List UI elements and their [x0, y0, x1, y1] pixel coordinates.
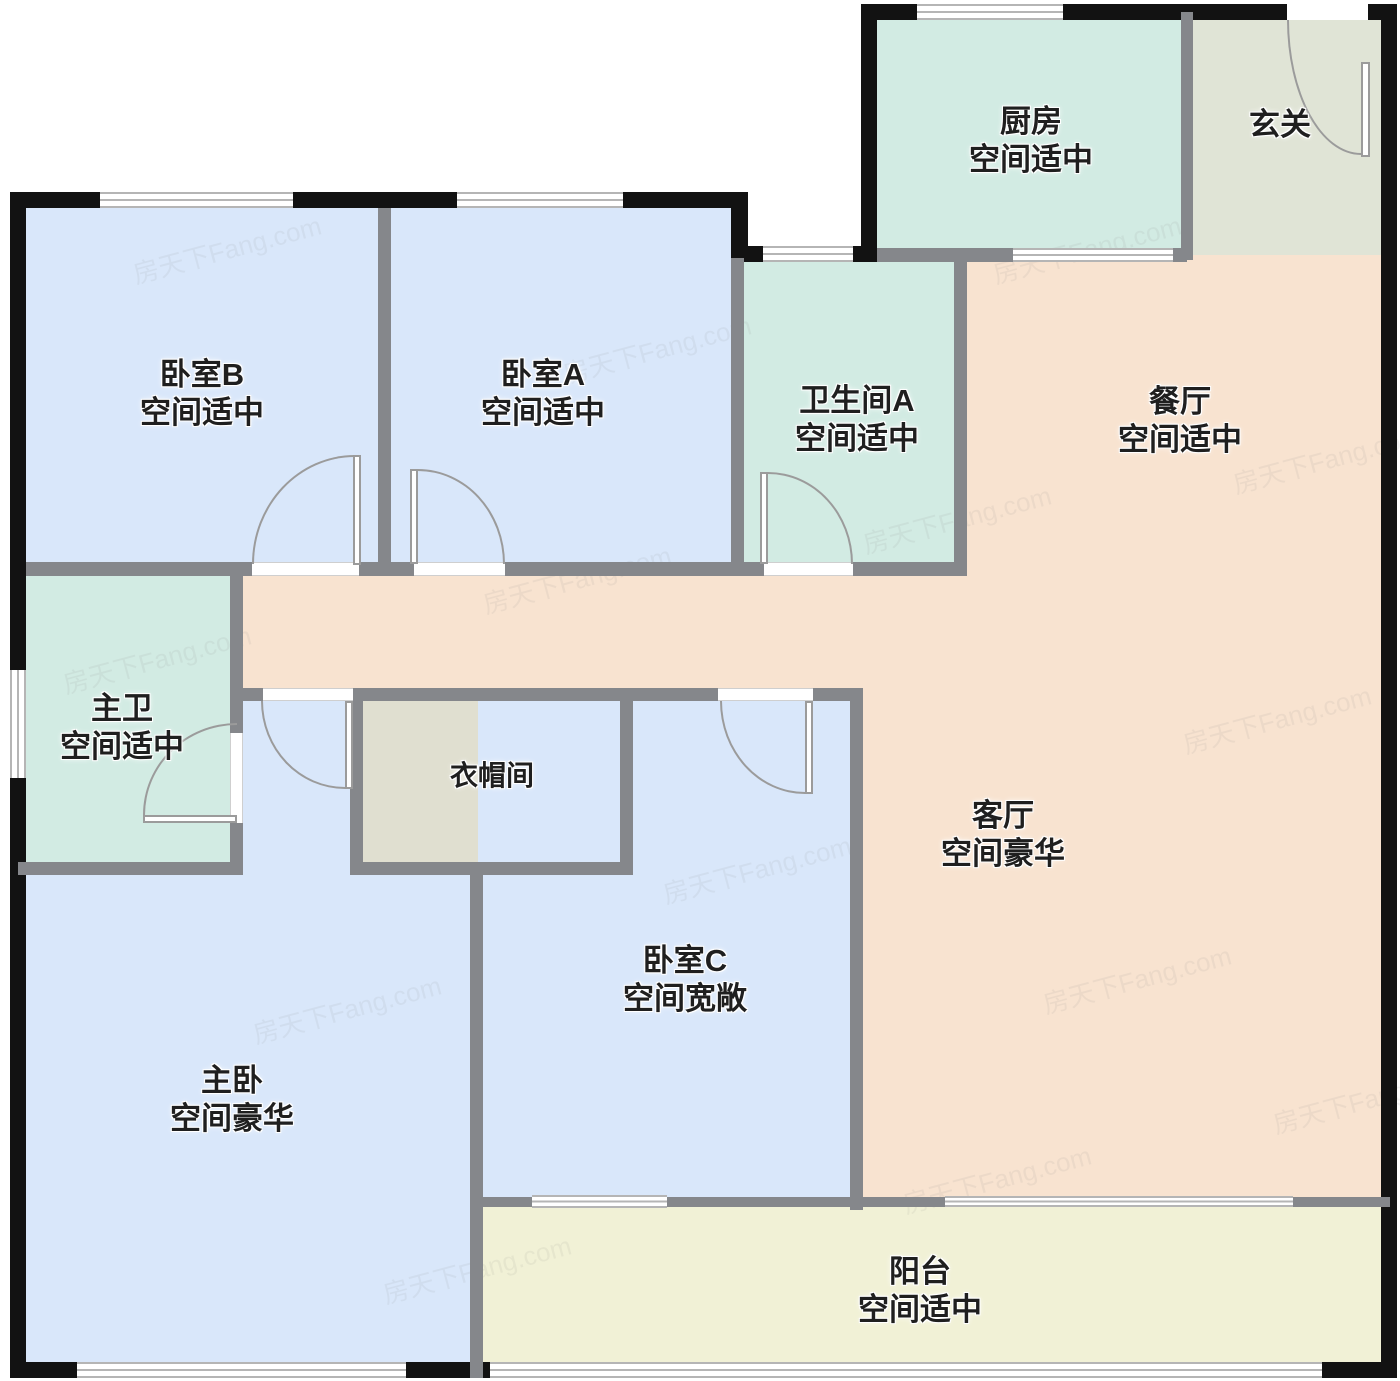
- window-bedroomA-2: [543, 192, 623, 208]
- opening-bedroomA: [414, 562, 505, 576]
- room-name: 卧室A: [481, 356, 605, 394]
- room-name: 客厅: [941, 797, 1065, 835]
- window-balcony-1: [490, 1362, 906, 1378]
- wall-closet-bottom: [350, 862, 633, 875]
- wall-kitchen-entry: [1181, 12, 1193, 260]
- wall-corridor-top-2: [359, 562, 414, 576]
- room-size: 空间适中: [1118, 421, 1242, 459]
- window-bedroomC-balcony: [532, 1195, 667, 1208]
- wall-closet-right: [620, 696, 633, 875]
- wall-exterior-kitchen-left: [861, 4, 877, 258]
- room-label-dining: 餐厅 空间适中: [1118, 383, 1242, 459]
- door-leaf-masterbath: [143, 815, 237, 823]
- room-name: 主卫: [60, 690, 184, 728]
- room-name: 餐厅: [1118, 383, 1242, 421]
- wall-exterior-top-left: [10, 192, 100, 208]
- wall-bedroomC-living: [850, 688, 863, 1210]
- wall-exterior-bottom-r: [1322, 1362, 1397, 1378]
- wall-bedroomB-bedroomA: [378, 208, 391, 566]
- room-label-bedroom-b: 卧室B 空间适中: [140, 356, 264, 432]
- window-bedroomA-1: [457, 192, 543, 208]
- wall-exterior-kitchen-top-l: [861, 4, 917, 20]
- room-size: 空间豪华: [170, 1100, 294, 1138]
- window-bedroomB-2: [198, 192, 293, 208]
- floor-hall-corridor: [236, 570, 970, 696]
- opening-bedroomC: [718, 688, 813, 701]
- wall-kitchen-bottom-l: [877, 248, 1013, 262]
- opening-bathroomA: [764, 562, 853, 576]
- room-size: 空间适中: [140, 394, 264, 432]
- wall-master-bedroomC-balcony: [470, 862, 483, 1378]
- wall-exterior-right: [1381, 4, 1397, 1378]
- wall-exterior-top-right: [623, 192, 748, 208]
- wall-corridor-bottom-1: [243, 688, 263, 701]
- floor-plan: 房天下Fang.com 房天下Fang.com 房天下Fang.com 房天下F…: [0, 0, 1400, 1381]
- room-name: 卧室B: [140, 356, 264, 394]
- window-bedroomB-1: [100, 192, 198, 208]
- window-bathroomA-1: [763, 246, 808, 262]
- room-label-balcony: 阳台 空间适中: [858, 1253, 982, 1329]
- wall-exterior-top-mid: [293, 192, 457, 208]
- room-label-closet: 衣帽间: [450, 757, 534, 795]
- room-label-entry: 玄关: [1249, 106, 1311, 144]
- room-label-bathroom-a: 卫生间A 空间适中: [795, 382, 919, 458]
- wall-corridor-top-3: [505, 562, 764, 576]
- sliding-door-kitchen: [1013, 248, 1173, 262]
- wall-corridor-top-4: [853, 562, 967, 576]
- room-name: 衣帽间: [450, 757, 534, 795]
- door-leaf-bedroomC: [805, 701, 813, 794]
- door-leaf-entry: [1361, 62, 1370, 157]
- room-name: 卫生间A: [795, 382, 919, 420]
- room-size: 空间适中: [795, 420, 919, 458]
- wall-masterbath-bottom: [18, 862, 243, 875]
- room-name: 玄关: [1249, 106, 1311, 144]
- room-label-master-bath: 主卫 空间适中: [60, 690, 184, 766]
- floor-hall-living-left: [850, 690, 970, 1207]
- wall-exterior-bottom-l: [10, 1362, 77, 1378]
- window-masterbath-left: [10, 670, 26, 778]
- window-balcony-2: [906, 1362, 1322, 1378]
- window-master-bottom-1: [77, 1362, 242, 1378]
- sliding-door-living-2: [1119, 1196, 1293, 1207]
- wall-masterbath-right-up: [230, 576, 243, 733]
- wall-exterior-left: [10, 192, 26, 1378]
- room-label-bedroom-c: 卧室C 空间宽敞: [623, 942, 747, 1018]
- window-bathroomA-2: [808, 246, 853, 262]
- door-leaf-bedroomA: [410, 469, 418, 564]
- sliding-door-living-1: [945, 1196, 1119, 1207]
- window-kitchen-2: [992, 4, 1063, 20]
- room-label-master-bedroom: 主卧 空间豪华: [170, 1062, 294, 1138]
- room-size: 空间适中: [60, 728, 184, 766]
- wall-exterior-kitchen-top-r: [1063, 4, 1287, 20]
- room-label-bedroom-a: 卧室A 空间适中: [481, 356, 605, 432]
- room-size: 空间适中: [858, 1291, 982, 1329]
- opening-entry-door: [1287, 4, 1368, 20]
- room-size: 空间适中: [481, 394, 605, 432]
- room-name: 主卧: [170, 1062, 294, 1100]
- opening-bedroomB: [252, 562, 359, 576]
- wall-corridor-bottom-2: [353, 688, 718, 701]
- room-label-kitchen: 厨房 空间适中: [969, 103, 1093, 179]
- room-size: 空间豪华: [941, 835, 1065, 873]
- door-leaf-master-entry: [345, 701, 353, 789]
- window-kitchen-1: [917, 4, 992, 20]
- window-master-bottom-2: [242, 1362, 406, 1378]
- room-label-living: 客厅 空间豪华: [941, 797, 1065, 873]
- wall-bedroomA-bathroomA: [731, 258, 744, 568]
- wall-bathroomA-right: [954, 258, 967, 576]
- room-name: 厨房: [969, 103, 1093, 141]
- room-name: 阳台: [858, 1253, 982, 1291]
- door-leaf-bathroomA: [760, 472, 768, 564]
- room-size: 空间适中: [969, 141, 1093, 179]
- room-name: 卧室C: [623, 942, 747, 980]
- room-size: 空间宽敞: [623, 980, 747, 1018]
- wall-corridor-top-1: [26, 562, 252, 576]
- opening-master-entry: [263, 688, 353, 701]
